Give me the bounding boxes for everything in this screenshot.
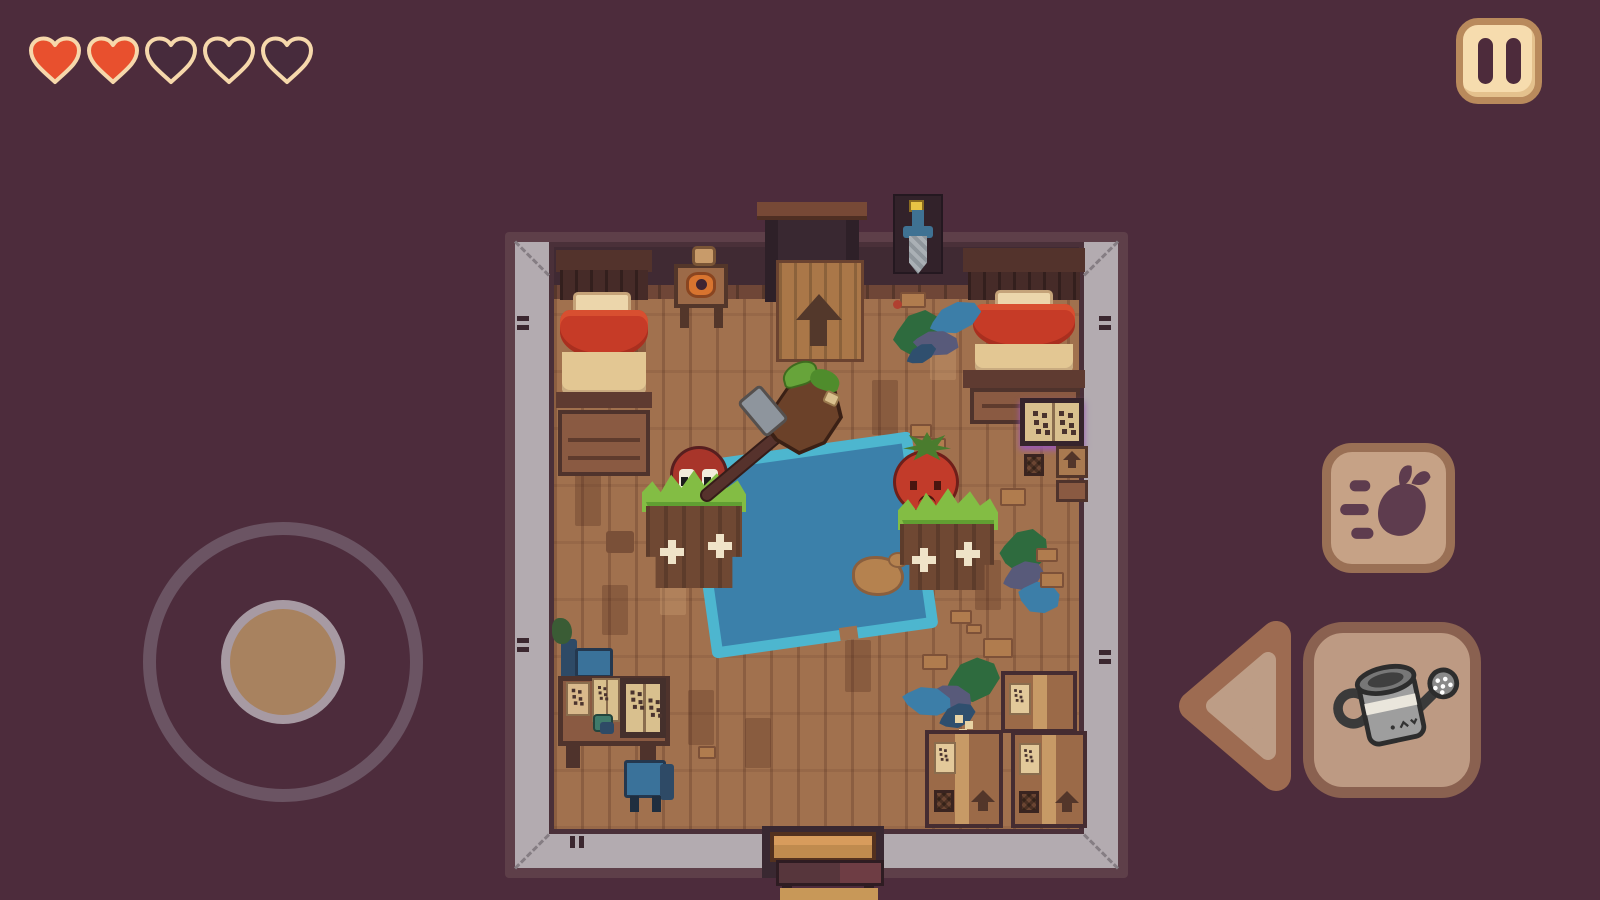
crate-arrow-stem xyxy=(978,801,988,811)
porch-step xyxy=(780,888,878,900)
label-marks xyxy=(1024,749,1027,752)
crate-label xyxy=(1019,743,1041,775)
book-text-marks xyxy=(598,686,601,689)
crate-woven-patch xyxy=(934,790,954,812)
pot-flower xyxy=(964,550,972,558)
nightstand-leg xyxy=(680,308,689,328)
heart-empty-icon xyxy=(144,36,198,90)
tomato-eye xyxy=(934,481,941,490)
crate-woven-patch xyxy=(1019,791,1039,813)
book-text-marks xyxy=(631,691,635,695)
crate-tape xyxy=(1042,735,1056,824)
heart-filled-icon xyxy=(86,36,140,90)
small-crate xyxy=(983,638,1013,658)
small-box xyxy=(1000,488,1026,506)
weed-sparkle xyxy=(955,715,963,723)
wall-mark xyxy=(1099,316,1111,321)
weed-debris xyxy=(1036,548,1058,562)
heart-empty-icon xyxy=(260,36,314,90)
floor-shade xyxy=(745,718,771,768)
book-spine xyxy=(643,684,646,732)
left-arrow-icon xyxy=(1172,620,1298,792)
nightstand-leg xyxy=(714,308,723,328)
ink-pot-shadow xyxy=(600,722,614,734)
bed-right-footboard xyxy=(963,370,1085,388)
pause-icon xyxy=(1506,38,1521,84)
dash-radish-icon xyxy=(1337,456,1440,560)
spell-book-stand xyxy=(1020,398,1084,446)
hearts-bar xyxy=(28,36,314,90)
bed-right-headboard xyxy=(963,248,1085,272)
label-marks xyxy=(1014,689,1017,692)
heart-empty-icon xyxy=(202,36,256,90)
pot-flower xyxy=(716,542,724,550)
planter-pot xyxy=(900,524,994,590)
wardrobe-drawer-line xyxy=(568,438,640,442)
floor-debris xyxy=(606,531,634,553)
porch-ramp xyxy=(770,832,876,862)
bed-left-headboard xyxy=(556,250,652,272)
cardboard-crate xyxy=(1001,671,1077,733)
chair-leg xyxy=(630,796,639,812)
dash-button[interactable] xyxy=(1322,443,1455,573)
floor-debris xyxy=(950,610,972,624)
arrow-crate xyxy=(1056,446,1088,478)
watering-can-icon xyxy=(1320,650,1464,770)
weed-berry xyxy=(893,300,902,309)
book-text-marks xyxy=(1059,411,1064,416)
book-text-marks xyxy=(1033,411,1038,416)
crate-label xyxy=(934,742,956,774)
wardrobe xyxy=(558,410,650,476)
crate-tape xyxy=(955,734,969,824)
weed-debris xyxy=(900,292,926,308)
floor-shade xyxy=(575,470,601,526)
label-marks xyxy=(939,748,942,751)
paper-sheet xyxy=(566,682,590,716)
ramp-arrow-stem xyxy=(810,318,827,346)
book-spine xyxy=(1052,403,1055,441)
planter-pot xyxy=(646,506,742,588)
heart-filled-icon xyxy=(28,36,82,90)
bed-left-blanket xyxy=(560,310,648,358)
tomato-eye xyxy=(910,481,917,490)
cardboard-crate xyxy=(925,730,1003,828)
wardrobe-drawer-line xyxy=(568,456,640,460)
weed-debris xyxy=(1040,572,1064,588)
joystick-knob[interactable] xyxy=(221,600,345,724)
wall-mark xyxy=(570,836,575,848)
pause-icon xyxy=(1478,38,1493,84)
bed-left-sheet xyxy=(562,352,646,396)
floor-shade xyxy=(845,640,871,692)
small-bush xyxy=(552,618,572,644)
crate-arrow xyxy=(1063,451,1081,460)
book-text-marks xyxy=(649,699,653,703)
crate-arrow-stem xyxy=(1062,802,1072,812)
floor-debris xyxy=(966,624,982,634)
desk-leg xyxy=(566,744,580,768)
floor-shade xyxy=(872,380,898,435)
porch-bench xyxy=(776,860,884,886)
floor-shade xyxy=(688,690,714,745)
wall-mark xyxy=(517,316,529,321)
jar xyxy=(692,246,716,266)
pot-flower xyxy=(668,548,676,556)
paper-marks xyxy=(572,689,576,693)
framed-open-book xyxy=(620,678,666,738)
small-box xyxy=(1056,480,1088,502)
chair-back xyxy=(660,764,674,800)
top-doorway-lintel xyxy=(757,202,867,220)
ramp-arrow xyxy=(796,294,842,320)
wall-mark xyxy=(517,638,529,643)
floor-debris xyxy=(698,746,716,759)
candle-wick xyxy=(696,279,707,290)
bed-left-footboard xyxy=(556,392,652,408)
pot-flower xyxy=(920,556,928,564)
crate-arrow-stem xyxy=(1068,460,1076,468)
weed-debris xyxy=(922,654,948,670)
water-button[interactable] xyxy=(1303,622,1481,798)
game-screen xyxy=(0,0,1600,900)
crate-label xyxy=(1009,683,1031,715)
crate-tape xyxy=(1033,675,1047,729)
blue-chair-top xyxy=(575,648,613,678)
floor-shade xyxy=(602,585,628,635)
pool-chip xyxy=(839,626,859,641)
pause-button[interactable] xyxy=(1456,18,1542,104)
wall-mark xyxy=(1099,650,1111,655)
woven-basket xyxy=(1024,454,1044,476)
back-button[interactable] xyxy=(1172,620,1298,792)
cardboard-crate xyxy=(1011,731,1087,828)
chair-leg xyxy=(652,796,661,812)
